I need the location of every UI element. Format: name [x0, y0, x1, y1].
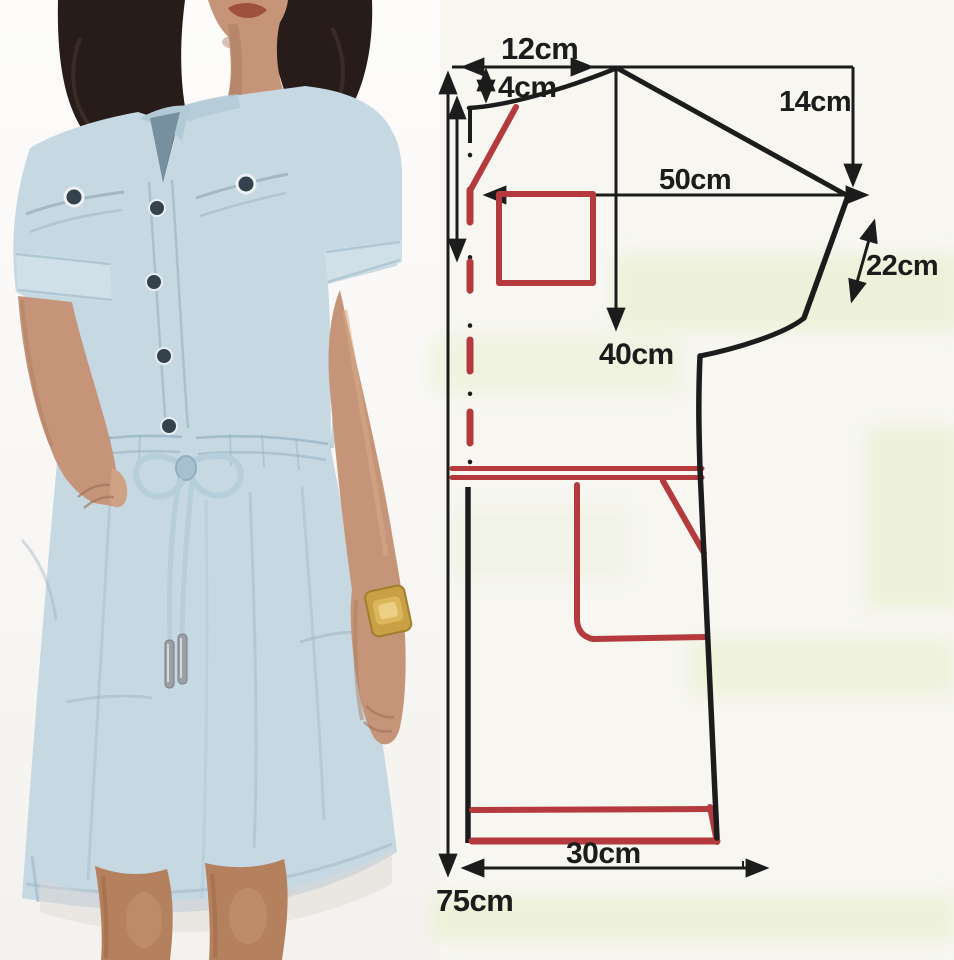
- pattern-diagram: 12cm 4cm 14cm 50cm 22cm 40cm 30cm 75cm: [0, 0, 954, 960]
- measure-label-sleeve-drop: 14cm: [779, 88, 851, 117]
- side-seam-line: [699, 356, 717, 838]
- measure-label-hem-width: 30cm: [566, 839, 641, 869]
- red-pattern-marks: [452, 107, 717, 842]
- measure-label-sleeve-edge: 22cm: [866, 252, 938, 281]
- side-pocket-opening-line: [663, 481, 704, 553]
- chest-pocket-square: [499, 194, 593, 283]
- measure-label-chest-width: 50cm: [659, 166, 731, 195]
- pattern-drawing: [0, 0, 954, 960]
- neck-slit-line: [471, 107, 516, 189]
- measure-label-front-neck-depth: 4cm: [498, 73, 557, 103]
- waistline: [452, 469, 702, 478]
- measure-label-chest-depth: 40cm: [599, 340, 674, 370]
- measure-label-garment-length: 75cm: [436, 885, 513, 916]
- sewing-pattern-page: 12cm 4cm 14cm 50cm 22cm 40cm 30cm 75cm: [0, 0, 954, 960]
- paper-tint-patches: [430, 255, 954, 940]
- measure-label-neck-width: 12cm: [501, 33, 578, 64]
